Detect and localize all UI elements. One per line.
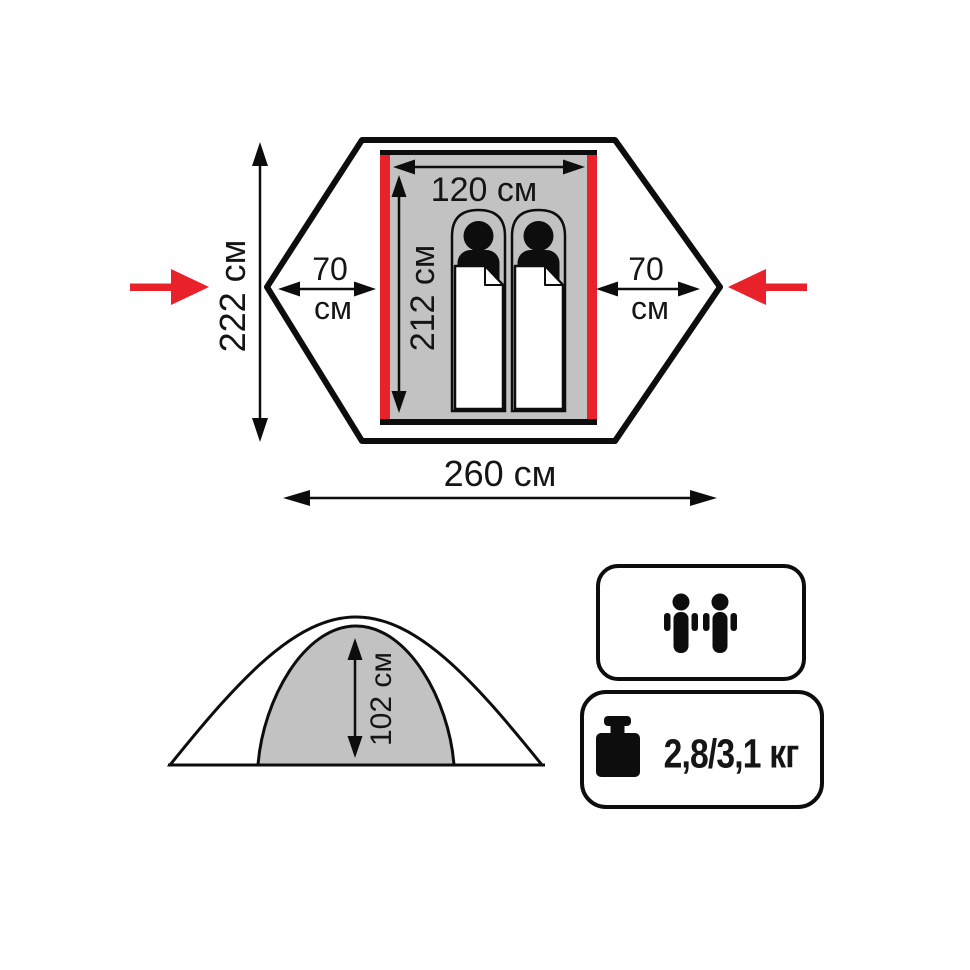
inner-tent-door-left	[380, 155, 390, 419]
weight-value-label: 2,8/3,1 кг	[664, 734, 799, 775]
inner-tent-door-right	[587, 155, 597, 419]
inner-tent-top-border	[380, 150, 597, 155]
inner-length-label: 212 см	[406, 245, 440, 352]
tent-spec-diagram: 222 см 120 см 212 см 70 см 70 см 260 см …	[0, 0, 970, 970]
dim-arrow-total-width	[252, 142, 268, 442]
inner-width-label: 120 см	[431, 173, 538, 207]
sleeper-head	[464, 221, 494, 251]
vestibule-right-value: 70	[628, 253, 664, 285]
total-width-label: 222 см	[215, 240, 251, 353]
sleeping-bag-cover	[515, 266, 563, 409]
capacity-box	[598, 566, 804, 679]
vestibule-left-value: 70	[312, 253, 348, 285]
vestibule-left-unit: см	[314, 292, 352, 324]
inner-tent-bottom-border	[380, 419, 597, 425]
entrance-arrow-left	[130, 269, 209, 305]
inner-height-label: 102 см	[367, 652, 397, 746]
total-length-label: 260 см	[444, 456, 557, 492]
entrance-arrow-right	[728, 269, 807, 305]
sleeping-bag-cover	[455, 266, 503, 409]
vestibule-right-unit: см	[631, 292, 669, 324]
sleeper-head	[524, 221, 554, 251]
